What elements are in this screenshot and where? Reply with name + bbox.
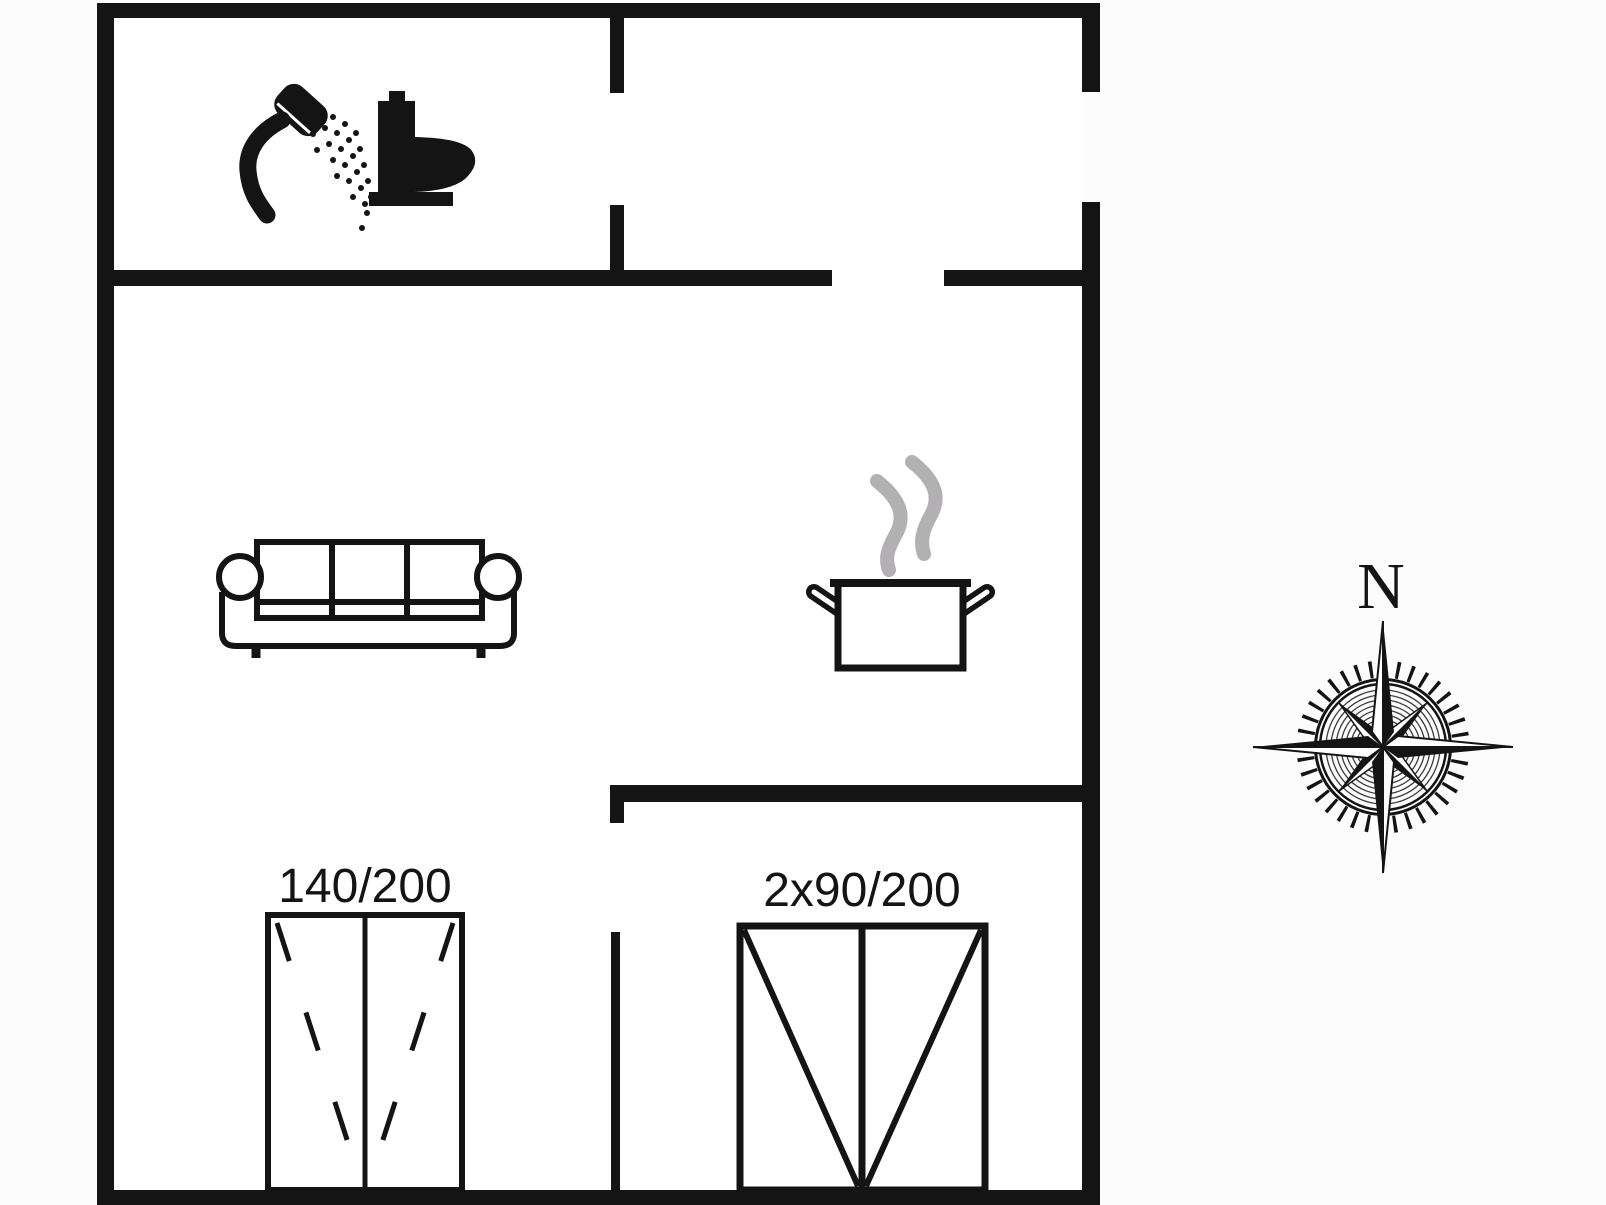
wall-top [97,3,1100,18]
wall-bathroom-right-upper [610,17,624,93]
cooking-pot-icon [814,583,987,668]
double-bed-icon [268,915,462,1190]
wall-bedroom-divider [611,932,620,1190]
floor-plan-page: 140/200 2x90/200 N [0,0,1606,1205]
wall-bathroom-right-lower [610,205,624,286]
wall-right-upper [1082,3,1100,92]
wall-left [97,3,114,1205]
twin-beds-icon [740,926,985,1190]
twin-beds-label: 2x90/200 [763,864,961,917]
wall-right-lower [1082,202,1100,1205]
compass-north-label: N [1357,550,1405,623]
wall-bedroom-door-stub [610,785,624,823]
double-bed-label: 140/200 [278,860,452,913]
wall-hall-bottom-right [944,270,1082,286]
wall-hall-bottom-left [114,270,832,286]
wall-bedroom-top [610,785,1082,802]
